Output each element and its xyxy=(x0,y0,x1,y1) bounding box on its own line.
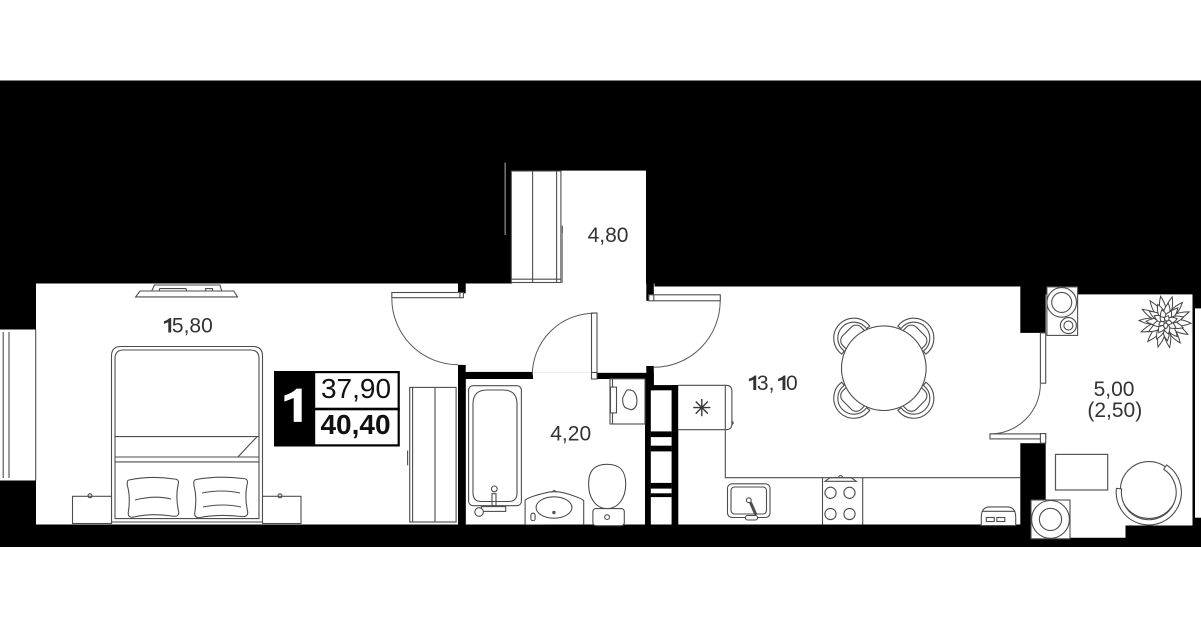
svg-text:4,20: 4,20 xyxy=(550,423,591,446)
svg-text:5,80: 5,80 xyxy=(172,315,213,338)
svg-text:4,80: 4,80 xyxy=(588,224,629,247)
svg-text:3,: 3, xyxy=(757,372,775,395)
svg-text:0: 0 xyxy=(786,372,798,395)
svg-text:5,00: 5,00 xyxy=(1094,378,1135,401)
svg-text:(2,50): (2,50) xyxy=(1087,399,1142,422)
svg-text:40,40: 40,40 xyxy=(320,409,390,440)
svg-text:37,90: 37,90 xyxy=(321,373,391,404)
